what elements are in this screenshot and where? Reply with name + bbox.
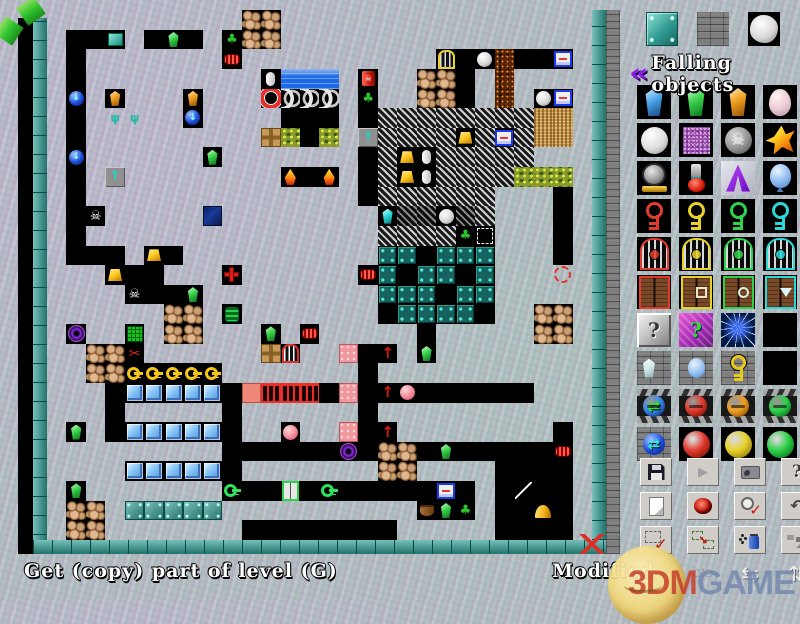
map-tile-brick[interactable] [47, 246, 66, 266]
map-tile-brick[interactable] [573, 422, 592, 442]
map-tile-rock[interactable] [417, 69, 436, 89]
map-tile-brick[interactable] [183, 49, 202, 69]
map-tile-brick[interactable] [436, 324, 455, 344]
map-tile-brick[interactable] [514, 403, 533, 423]
map-tile-brick[interactable] [86, 187, 105, 207]
map-tile-brick[interactable] [534, 344, 553, 364]
map-tile-empty[interactable] [144, 265, 163, 285]
map-tile-brick[interactable] [47, 344, 66, 364]
map-tile-gemg[interactable] [66, 422, 85, 442]
map-tile-hatch[interactable] [456, 147, 475, 167]
map-tile-panel[interactable] [456, 304, 475, 324]
map-tile-hatchdark[interactable] [456, 206, 475, 226]
map-tile-empty[interactable] [105, 246, 124, 266]
palette-item-ball-red[interactable] [679, 427, 713, 461]
map-tile-hatchdark[interactable] [397, 206, 416, 226]
map-tile-brick[interactable] [222, 324, 241, 344]
map-tile-brick[interactable] [573, 167, 592, 187]
map-tile-empty[interactable] [339, 520, 358, 540]
map-tile-ice[interactable] [203, 422, 222, 442]
map-tile-hatch[interactable] [436, 108, 455, 128]
map-tile-brick[interactable] [475, 363, 494, 383]
map-tile-brick[interactable] [358, 246, 377, 266]
map-tile-empty[interactable] [358, 442, 377, 462]
map-tile-brick[interactable] [417, 30, 436, 50]
map-tile-brick[interactable] [86, 285, 105, 305]
map-tile-brick[interactable] [573, 89, 592, 109]
map-tile-brick[interactable] [475, 501, 494, 521]
map-tile-panel[interactable] [475, 265, 494, 285]
map-tile-panel[interactable] [456, 246, 475, 266]
map-tile-empty[interactable] [553, 422, 572, 442]
map-tile-empty[interactable] [534, 49, 553, 69]
map-tile-hatch[interactable] [397, 128, 416, 148]
map-tile-brick[interactable] [47, 226, 66, 246]
level-map[interactable]: ♣☠↓♣ψψ↓↑↓↑☠♣☠✂↑↑↑♣ [18, 10, 620, 554]
map-tile-brick[interactable] [242, 147, 261, 167]
map-tile-brick[interactable] [164, 187, 183, 207]
map-tile-panel[interactable] [378, 285, 397, 305]
map-tile-empty[interactable] [495, 481, 514, 501]
map-tile-brick[interactable] [144, 69, 163, 89]
map-tile-brick[interactable] [495, 324, 514, 344]
palette-item-arrow-purple[interactable] [721, 161, 755, 195]
map-tile-brick[interactable] [261, 187, 280, 207]
map-tile-brick[interactable] [222, 520, 241, 540]
map-tile-brick[interactable] [534, 285, 553, 305]
map-tile-brick[interactable] [86, 89, 105, 109]
map-tile-brick[interactable] [47, 206, 66, 226]
map-tile-ice[interactable] [125, 461, 144, 481]
map-tile-plant[interactable]: ♣ [456, 226, 475, 246]
map-tile-rock[interactable] [86, 363, 105, 383]
map-tile-brick[interactable] [125, 442, 144, 462]
map-tile-brick[interactable] [222, 501, 241, 521]
map-tile-brick[interactable] [495, 422, 514, 442]
map-tile-brick[interactable] [125, 69, 144, 89]
map-tile-brick[interactable] [144, 324, 163, 344]
map-tile-empty[interactable] [553, 461, 572, 481]
map-tile-empty[interactable] [397, 481, 416, 501]
spray-button[interactable] [734, 526, 766, 554]
map-tile-empty[interactable] [456, 265, 475, 285]
palette-sample-white-boulder[interactable] [748, 12, 780, 46]
map-tile-brick[interactable] [281, 30, 300, 50]
map-tile-empty[interactable] [66, 128, 85, 148]
map-tile-brick[interactable] [456, 520, 475, 540]
map-tile-brick[interactable] [47, 442, 66, 462]
map-tile-rock[interactable] [261, 30, 280, 50]
map-tile-empty[interactable] [358, 344, 377, 364]
map-tile-brick[interactable] [456, 363, 475, 383]
map-tile-ice[interactable] [164, 461, 183, 481]
map-tile-ice[interactable] [144, 383, 163, 403]
map-tile-ice[interactable] [144, 461, 163, 481]
map-tile-brick[interactable] [339, 226, 358, 246]
map-tile-panel[interactable] [475, 246, 494, 266]
map-tile-brick[interactable] [105, 206, 124, 226]
map-tile-brick[interactable] [183, 206, 202, 226]
map-tile-brick[interactable] [144, 49, 163, 69]
map-tile-brick[interactable] [339, 30, 358, 50]
map-tile-empty[interactable] [358, 363, 377, 383]
map-tile-brick[interactable] [242, 461, 261, 481]
map-tile-cursor[interactable] [553, 265, 572, 285]
map-tile-empty[interactable] [417, 324, 436, 344]
map-tile-wave[interactable] [319, 89, 338, 109]
map-tile-hatch[interactable] [378, 187, 397, 207]
map-tile-brick[interactable] [183, 128, 202, 148]
map-tile-brick[interactable] [66, 344, 85, 364]
map-tile-ballb[interactable]: ↓ [66, 89, 85, 109]
map-tile-brick[interactable] [456, 324, 475, 344]
map-tile-brick[interactable] [534, 69, 553, 89]
map-tile-brick[interactable] [339, 69, 358, 89]
map-tile-brick[interactable] [164, 108, 183, 128]
map-tile-empty[interactable] [514, 461, 533, 481]
palette-item-key-red[interactable] [637, 199, 671, 233]
map-tile-brick[interactable] [203, 89, 222, 109]
map-tile-brick[interactable] [573, 501, 592, 521]
map-tile-dashbox[interactable] [475, 226, 494, 246]
map-tile-brick[interactable] [300, 285, 319, 305]
map-tile-empty[interactable] [300, 167, 319, 187]
map-tile-brick[interactable] [339, 128, 358, 148]
map-tile-brick[interactable] [573, 187, 592, 207]
map-tile-brick[interactable] [242, 128, 261, 148]
map-tile-brick[interactable] [164, 481, 183, 501]
map-tile-empty[interactable] [553, 187, 572, 207]
map-tile-brick[interactable] [203, 344, 222, 364]
map-tile-brick[interactable] [47, 108, 66, 128]
map-tile-whiteball[interactable] [534, 89, 553, 109]
map-tile-brick[interactable] [573, 304, 592, 324]
map-tile-brick[interactable] [456, 422, 475, 442]
map-tile-hatch[interactable] [456, 108, 475, 128]
map-tile-brick[interactable] [436, 10, 455, 30]
map-tile-brick[interactable] [397, 501, 416, 521]
help-button[interactable]: ? [781, 458, 800, 486]
map-tile-brick[interactable] [534, 422, 553, 442]
map-tile-rock[interactable] [86, 520, 105, 540]
map-tile-brick[interactable] [319, 304, 338, 324]
map-tile-hatch[interactable] [436, 128, 455, 148]
map-tile-gemg[interactable] [203, 147, 222, 167]
map-tile-empty[interactable] [358, 147, 377, 167]
map-tile-redgate[interactable] [261, 383, 280, 403]
map-tile-brick[interactable] [397, 49, 416, 69]
map-tile-brick[interactable] [242, 246, 261, 266]
map-tile-brick[interactable] [319, 206, 338, 226]
map-tile-brick[interactable] [144, 403, 163, 423]
palette-item-key-yellow[interactable] [679, 199, 713, 233]
map-tile-brick[interactable] [242, 285, 261, 305]
map-tile-rock[interactable] [105, 344, 124, 364]
map-tile-brick[interactable] [456, 344, 475, 364]
map-tile-brick[interactable] [203, 128, 222, 148]
map-tile-brick[interactable] [203, 324, 222, 344]
palette-item-key-cyan[interactable] [763, 199, 797, 233]
map-tile-brick[interactable] [573, 403, 592, 423]
map-tile-empty[interactable] [281, 108, 300, 128]
map-tile-brick[interactable] [553, 383, 572, 403]
map-tile-portal[interactable] [339, 442, 358, 462]
map-tile-rock[interactable] [553, 304, 572, 324]
map-tile-brick[interactable] [397, 344, 416, 364]
map-tile-brick[interactable] [47, 128, 66, 148]
map-tile-brick[interactable] [534, 206, 553, 226]
map-tile-rock[interactable] [534, 304, 553, 324]
map-tile-hatch[interactable] [436, 226, 455, 246]
map-tile-brick[interactable] [553, 285, 572, 305]
map-tile-brick[interactable] [183, 69, 202, 89]
map-tile-brick[interactable] [66, 285, 85, 305]
map-tile-brick[interactable] [164, 89, 183, 109]
map-tile-brick[interactable] [47, 383, 66, 403]
mirror-button[interactable]: ○|○ [687, 560, 719, 588]
map-tile-brick[interactable] [475, 10, 494, 30]
map-tile-brick[interactable] [144, 344, 163, 364]
map-tile-brick[interactable] [47, 422, 66, 442]
map-tile-brick[interactable] [86, 10, 105, 30]
purple-double-chevron-icon[interactable]: « [629, 64, 648, 84]
map-tile-brick[interactable] [203, 442, 222, 462]
map-tile-camo[interactable] [514, 167, 533, 187]
map-tile-empty[interactable] [495, 442, 514, 462]
map-tile-empty[interactable] [66, 167, 85, 187]
map-tile-brick[interactable] [573, 147, 592, 167]
map-tile-redplus[interactable] [222, 265, 241, 285]
map-tile-brick[interactable] [203, 285, 222, 305]
palette-item-hazard-ball-red[interactable] [679, 389, 713, 423]
capture-button[interactable] [734, 458, 766, 486]
map-tile-brick[interactable] [222, 344, 241, 364]
map-tile-water[interactable] [300, 69, 319, 89]
map-tile-brick[interactable] [573, 49, 592, 69]
map-tile-brick[interactable] [534, 383, 553, 403]
map-tile-brick[interactable] [183, 442, 202, 462]
map-tile-uparrow[interactable]: ↑ [378, 344, 397, 364]
map-tile-brick[interactable] [573, 69, 592, 89]
map-tile-empty[interactable] [319, 520, 338, 540]
map-tile-empty[interactable] [300, 442, 319, 462]
map-tile-brick[interactable] [281, 49, 300, 69]
map-tile-gemg[interactable] [164, 30, 183, 50]
map-tile-brick[interactable] [456, 10, 475, 30]
map-tile-ice[interactable] [203, 383, 222, 403]
palette-item-brick-balloon[interactable] [679, 351, 713, 385]
map-tile-coil[interactable] [222, 49, 241, 69]
map-tile-empty[interactable] [164, 285, 183, 305]
save-button[interactable] [640, 458, 672, 486]
map-tile-rock[interactable] [86, 344, 105, 364]
map-tile-rock[interactable] [553, 324, 572, 344]
map-tile-rock[interactable] [164, 304, 183, 324]
map-tile-empty[interactable] [358, 403, 377, 423]
map-tile-brick[interactable] [47, 520, 66, 540]
map-tile-capsule[interactable] [261, 69, 280, 89]
map-tile-brick[interactable] [125, 403, 144, 423]
map-tile-empty[interactable] [222, 383, 241, 403]
map-tile-brick[interactable] [86, 442, 105, 462]
map-tile-brick[interactable] [281, 285, 300, 305]
map-tile-redgate[interactable] [281, 383, 300, 403]
map-tile-brick[interactable] [319, 30, 338, 50]
map-tile-empty[interactable] [378, 304, 397, 324]
undo-button[interactable]: ↶ [781, 492, 800, 520]
map-tile-brick[interactable] [573, 481, 592, 501]
map-tile-brick[interactable] [86, 461, 105, 481]
map-tile-panel[interactable] [436, 265, 455, 285]
map-tile-brick[interactable] [300, 206, 319, 226]
palette-item-brick-key[interactable] [721, 351, 755, 385]
map-tile-hatch[interactable] [397, 108, 416, 128]
map-tile-hatch[interactable] [456, 167, 475, 187]
map-tile-empty[interactable] [66, 187, 85, 207]
map-tile-brick[interactable] [378, 363, 397, 383]
map-tile-hatch[interactable] [514, 108, 533, 128]
map-tile-brick[interactable] [495, 363, 514, 383]
map-tile-brick[interactable] [281, 265, 300, 285]
map-tile-brick[interactable] [495, 10, 514, 30]
map-tile-brick[interactable] [242, 206, 261, 226]
palette-item-hazard-ball-green[interactable] [763, 389, 797, 423]
map-tile-brick[interactable] [339, 501, 358, 521]
map-tile-brick[interactable] [164, 10, 183, 30]
map-tile-brick[interactable] [47, 89, 66, 109]
map-tile-brick[interactable] [300, 30, 319, 50]
map-tile-fuzz[interactable] [534, 128, 553, 148]
palette-item-brick-ball-blue[interactable]: ⇄ [637, 427, 671, 461]
map-tile-brick[interactable] [495, 265, 514, 285]
map-tile-brick[interactable] [66, 304, 85, 324]
map-tile-rock[interactable] [436, 89, 455, 109]
map-tile-brick[interactable] [125, 206, 144, 226]
palette-item-ball-green[interactable] [763, 427, 797, 461]
map-tile-brick[interactable] [125, 49, 144, 69]
palette-item-question-gray[interactable]: ? [637, 313, 671, 347]
map-tile-portal[interactable] [66, 324, 85, 344]
map-tile-brick[interactable] [105, 501, 124, 521]
map-tile-empty[interactable] [261, 520, 280, 540]
map-tile-brick[interactable] [358, 49, 377, 69]
map-tile-brick[interactable] [417, 461, 436, 481]
map-tile-brick[interactable] [47, 69, 66, 89]
map-tile-brick[interactable] [105, 285, 124, 305]
map-tile-sprout[interactable]: ψ [125, 108, 144, 128]
map-tile-empty[interactable] [495, 461, 514, 481]
map-tile-brick[interactable] [203, 520, 222, 540]
map-tile-empty[interactable] [164, 246, 183, 266]
map-tile-brick[interactable] [125, 520, 144, 540]
map-tile-hatch[interactable] [378, 147, 397, 167]
map-tile-brick[interactable] [495, 226, 514, 246]
map-tile-brick[interactable] [261, 108, 280, 128]
map-tile-brick[interactable] [417, 403, 436, 423]
map-tile-brick[interactable] [514, 69, 533, 89]
map-tile-salmon[interactable] [242, 383, 261, 403]
map-tile-brick[interactable] [319, 422, 338, 442]
map-tile-ice[interactable] [164, 422, 183, 442]
map-tile-empty[interactable] [358, 422, 377, 442]
map-tile-ballb[interactable]: ↓ [183, 108, 202, 128]
map-tile-rock[interactable] [378, 442, 397, 462]
map-tile-brick[interactable] [47, 167, 66, 187]
map-tile-brick[interactable] [573, 461, 592, 481]
map-tile-rock[interactable] [183, 324, 202, 344]
map-tile-empty[interactable] [495, 520, 514, 540]
map-tile-brick[interactable] [339, 324, 358, 344]
map-tile-empty[interactable] [66, 246, 85, 266]
map-tile-hatch[interactable] [417, 108, 436, 128]
map-tile-brick[interactable] [203, 187, 222, 207]
map-tile-brick[interactable] [203, 481, 222, 501]
map-tile-brick[interactable] [358, 304, 377, 324]
map-tile-empty[interactable] [514, 442, 533, 462]
map-tile-brick[interactable] [534, 30, 553, 50]
palette-item-ball-yellow[interactable] [721, 427, 755, 461]
map-tile-brick[interactable] [417, 520, 436, 540]
map-tile-brick[interactable] [281, 187, 300, 207]
zoomcheck-button[interactable] [734, 492, 766, 520]
map-tile-brick[interactable] [281, 403, 300, 423]
map-tile-brick[interactable] [534, 147, 553, 167]
map-tile-plant[interactable]: ♣ [358, 89, 377, 109]
map-tile-brick[interactable] [125, 304, 144, 324]
map-tile-brick[interactable] [514, 206, 533, 226]
map-tile-brick[interactable] [397, 422, 416, 442]
map-tile-brick[interactable] [242, 324, 261, 344]
map-tile-brick[interactable] [339, 167, 358, 187]
map-tile-empty[interactable] [358, 187, 377, 207]
map-tile-brick[interactable] [242, 187, 261, 207]
map-tile-brick[interactable] [47, 30, 66, 50]
map-tile-brick[interactable] [125, 481, 144, 501]
map-tile-brick[interactable] [125, 10, 144, 30]
map-tile-brick[interactable] [144, 520, 163, 540]
palette-item-balloon-blue[interactable] [763, 161, 797, 195]
map-tile-brick[interactable] [514, 324, 533, 344]
map-tile-empty[interactable] [222, 461, 241, 481]
map-tile-brick[interactable] [66, 461, 85, 481]
map-tile-brick[interactable] [319, 10, 338, 30]
map-tile-brick[interactable] [144, 481, 163, 501]
map-tile-tealgem[interactable] [378, 206, 397, 226]
map-tile-gemg[interactable] [183, 285, 202, 305]
map-tile-brick[interactable] [242, 108, 261, 128]
map-tile-ice[interactable] [125, 383, 144, 403]
map-tile-camo[interactable] [553, 167, 572, 187]
map-tile-tv[interactable] [105, 30, 124, 50]
map-tile-brick[interactable] [573, 128, 592, 148]
map-tile-rock[interactable] [66, 501, 85, 521]
map-tile-brick[interactable] [105, 442, 124, 462]
map-tile-empty[interactable] [534, 520, 553, 540]
map-tile-brick[interactable] [475, 422, 494, 442]
map-tile-gemg[interactable] [66, 481, 85, 501]
map-tile-brick[interactable] [105, 49, 124, 69]
map-tile-brick[interactable] [495, 206, 514, 226]
map-tile-pinkdot[interactable] [339, 383, 358, 403]
map-tile-brick[interactable] [281, 304, 300, 324]
map-tile-brick[interactable] [164, 442, 183, 462]
map-tile-brick[interactable] [514, 285, 533, 305]
map-tile-brick[interactable] [300, 187, 319, 207]
map-tile-brick[interactable] [378, 10, 397, 30]
toolbar-grid[interactable]: ▶?↶↘○|○⇆⇅ [640, 458, 800, 588]
map-tile-empty[interactable] [300, 481, 319, 501]
map-tile-hatch[interactable] [378, 108, 397, 128]
